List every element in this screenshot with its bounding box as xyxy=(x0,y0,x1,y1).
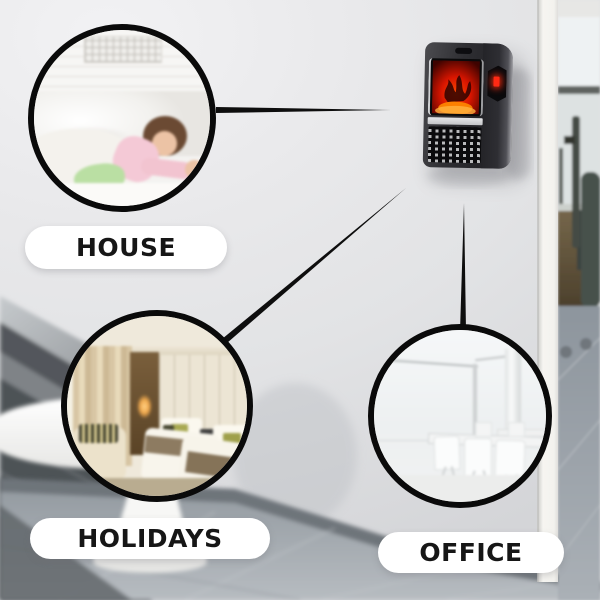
house-scene-photo xyxy=(28,24,216,212)
door-handle xyxy=(572,116,580,248)
heater-hanging-slot xyxy=(455,48,472,54)
office-doorway xyxy=(537,0,600,600)
heater-divider-trim xyxy=(428,117,483,125)
white-chair-2 xyxy=(464,438,492,475)
far-chair-2 xyxy=(508,422,525,437)
flame-heater-product xyxy=(423,42,514,169)
holidays-scene-photo xyxy=(61,310,253,502)
house-label: HOUSE xyxy=(76,235,176,260)
white-chair-3 xyxy=(495,440,526,480)
holidays-label: HOLIDAYS xyxy=(77,526,222,551)
label-pill-office: OFFICE xyxy=(378,532,564,573)
callout-circle-office xyxy=(368,324,552,508)
wall-decor-basket xyxy=(84,36,162,63)
connector-line-holidays xyxy=(222,188,406,343)
office-scene-photo xyxy=(368,324,552,508)
heater-heating-grille xyxy=(428,126,482,163)
product-infographic: HOUSE HOLIDAYS OFFICE xyxy=(0,0,600,600)
lamp-glow xyxy=(134,390,155,423)
heater-side-panel xyxy=(481,43,514,169)
striped-cushion xyxy=(79,424,118,443)
label-pill-house: HOUSE xyxy=(25,226,227,269)
child-hand xyxy=(185,160,204,179)
far-chair-1 xyxy=(475,422,492,437)
white-chair-1 xyxy=(433,436,460,470)
connector-line-office xyxy=(460,203,466,331)
connector-line-house xyxy=(216,107,391,113)
office-label: OFFICE xyxy=(419,540,522,565)
callout-circle-house xyxy=(28,24,216,212)
heater-flame-display xyxy=(428,58,484,116)
callout-circle-holidays xyxy=(61,310,253,502)
office-chair xyxy=(581,172,600,308)
label-pill-holidays: HOLIDAYS xyxy=(30,518,270,559)
heater-power-led xyxy=(493,77,499,87)
flame-graphic xyxy=(432,60,480,114)
